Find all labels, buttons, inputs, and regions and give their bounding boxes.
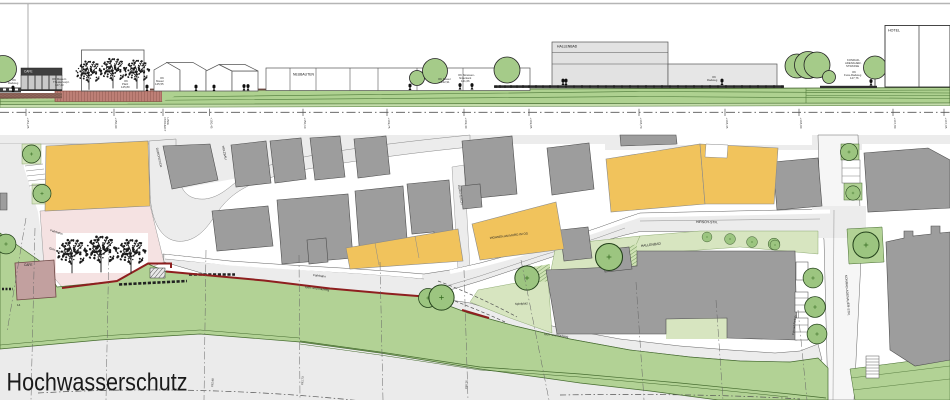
svg-text:CAFE: CAFE [24,263,33,267]
svg-text:NEUBAUTEN: NEUBAUTEN [293,73,314,77]
svg-text:147,43: 147,43 [55,83,64,87]
svg-text:145,80: 145,80 [121,85,130,89]
svg-text:141,66: 141,66 [461,79,470,83]
svg-text:Hochwasserschutz: Hochwasserschutz [7,370,188,397]
svg-text:+147,80: +147,80 [893,118,897,129]
svg-text:LINIE: LINIE [166,118,170,126]
svg-text:+148,00: +148,00 [799,118,803,129]
svg-text:145,55: 145,55 [155,82,164,86]
svg-text:142,91: 142,91 [441,80,450,84]
svg-text:HIRSCH-STR.: HIRSCH-STR. [696,220,718,224]
svg-text:+151,25: +151,25 [26,118,30,129]
svg-text:HALLENBAD: HALLENBAD [557,45,578,49]
svg-text:14: 14 [17,303,21,307]
svg-text:CAFE: CAFE [24,70,33,74]
svg-text:HOTEL: HOTEL [888,29,900,33]
svg-text:Radweg: Radweg [707,78,718,82]
svg-text:+147,65: +147,65 [944,118,948,129]
svg-text:Spielplatz: Spielplatz [515,301,529,306]
svg-text:+150,90: +150,90 [114,118,118,129]
svg-text:147,76: 147,76 [850,76,859,80]
svg-text:+148,70: +148,70 [639,118,643,129]
svg-text:Radweg: Radweg [8,81,19,85]
svg-text:152,48: 152,48 [210,378,215,387]
svg-text:+150,10: +150,10 [303,118,307,129]
svg-text:+150,45: +150,45 [210,118,214,129]
svg-text:150,75: 150,75 [464,380,469,389]
svg-text:+149,05: +149,05 [529,118,533,129]
svg-text:+149,75: +149,75 [387,118,391,129]
svg-text:STRASSE: STRASSE [846,64,859,68]
svg-text:+148,35: +148,35 [725,118,729,129]
svg-text:151,73: 151,73 [300,376,305,385]
svg-text:+149,40: +149,40 [464,118,468,129]
